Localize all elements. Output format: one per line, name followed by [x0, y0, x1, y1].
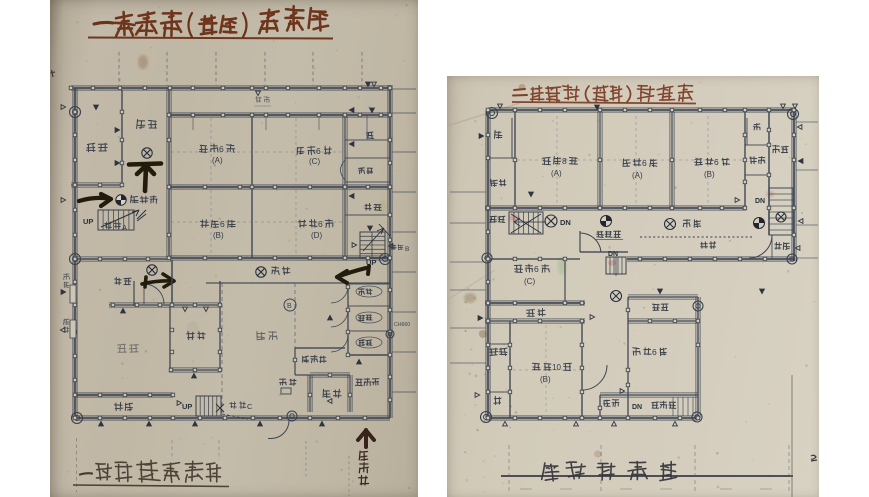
svg-text:DN: DN [632, 404, 642, 411]
svg-text:8: 8 [562, 156, 567, 166]
svg-text:6: 6 [652, 347, 657, 357]
svg-text:10: 10 [552, 363, 561, 372]
svg-text:UP: UP [83, 217, 93, 226]
svg-text:6: 6 [318, 219, 323, 229]
svg-text:(C): (C) [309, 157, 320, 166]
svg-text:CH660: CH660 [394, 322, 410, 328]
svg-text:UP: UP [182, 402, 192, 411]
svg-text:(B): (B) [213, 231, 224, 240]
svg-text:6: 6 [714, 157, 719, 167]
svg-text:(A): (A) [632, 171, 643, 180]
svg-text:(B): (B) [704, 170, 715, 179]
svg-text:(A): (A) [551, 169, 562, 178]
svg-text:6: 6 [220, 219, 225, 229]
svg-text:B: B [405, 246, 409, 253]
svg-text:6: 6 [642, 158, 647, 168]
svg-text:B: B [287, 303, 292, 310]
svg-text:6: 6 [534, 264, 539, 274]
svg-text:(C): (C) [524, 277, 535, 286]
svg-text:6: 6 [219, 144, 224, 154]
svg-text:(D): (D) [311, 231, 322, 240]
svg-text:6: 6 [316, 146, 321, 156]
svg-text:A: A [122, 223, 127, 232]
svg-text:(A): (A) [212, 156, 223, 165]
svg-text:C: C [247, 402, 253, 411]
svg-text:(B): (B) [540, 375, 551, 384]
svg-text:DN: DN [755, 198, 765, 205]
svg-text:DN: DN [560, 218, 571, 227]
